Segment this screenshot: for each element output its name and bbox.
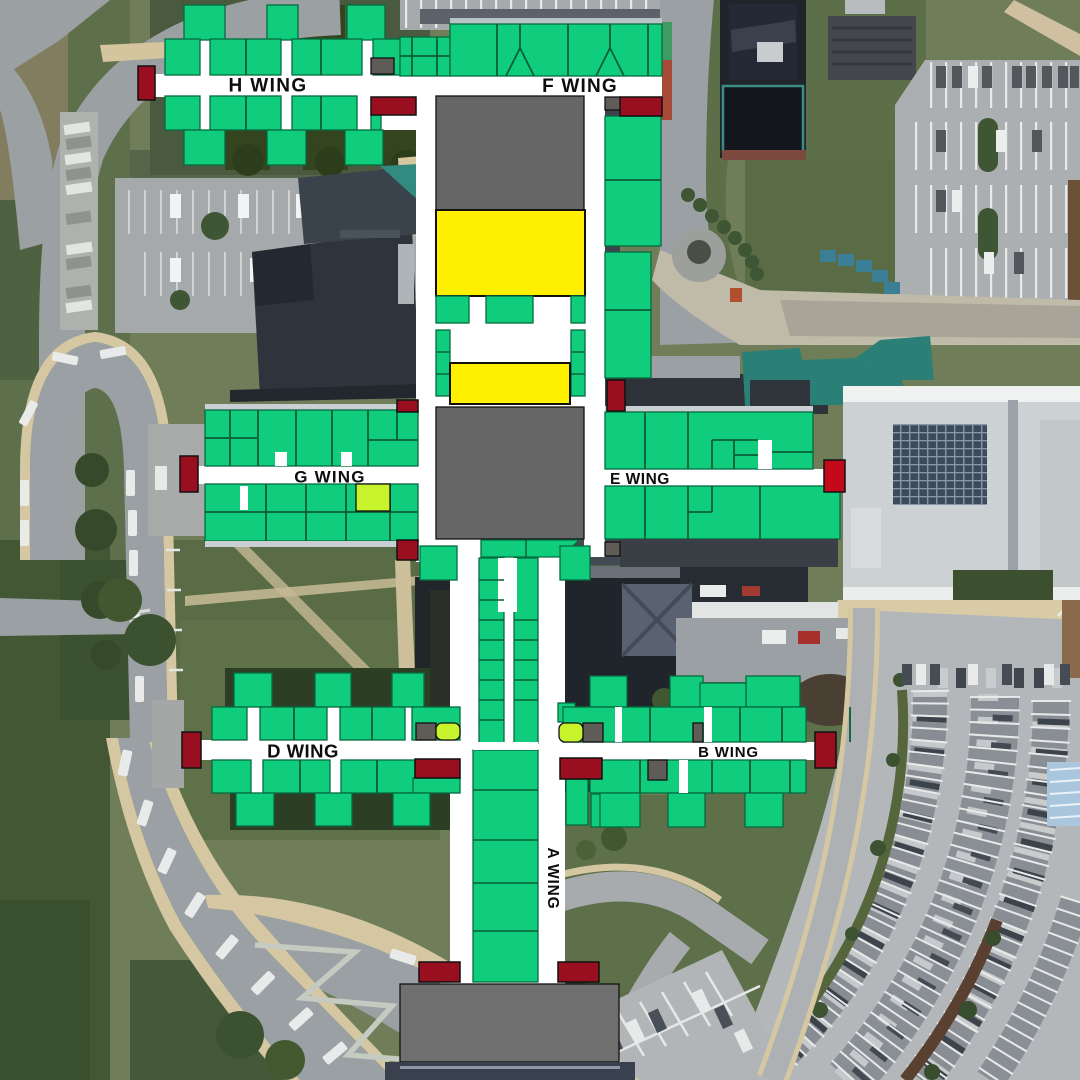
- svg-text:D WING: D WING: [267, 741, 339, 762]
- svg-text:A WING: A WING: [544, 848, 561, 910]
- svg-text:F WING: F WING: [542, 76, 618, 97]
- svg-text:G WING: G WING: [294, 468, 365, 487]
- svg-text:H WING: H WING: [228, 76, 307, 97]
- svg-text:E WING: E WING: [610, 471, 670, 488]
- svg-text:B WING: B WING: [698, 744, 759, 761]
